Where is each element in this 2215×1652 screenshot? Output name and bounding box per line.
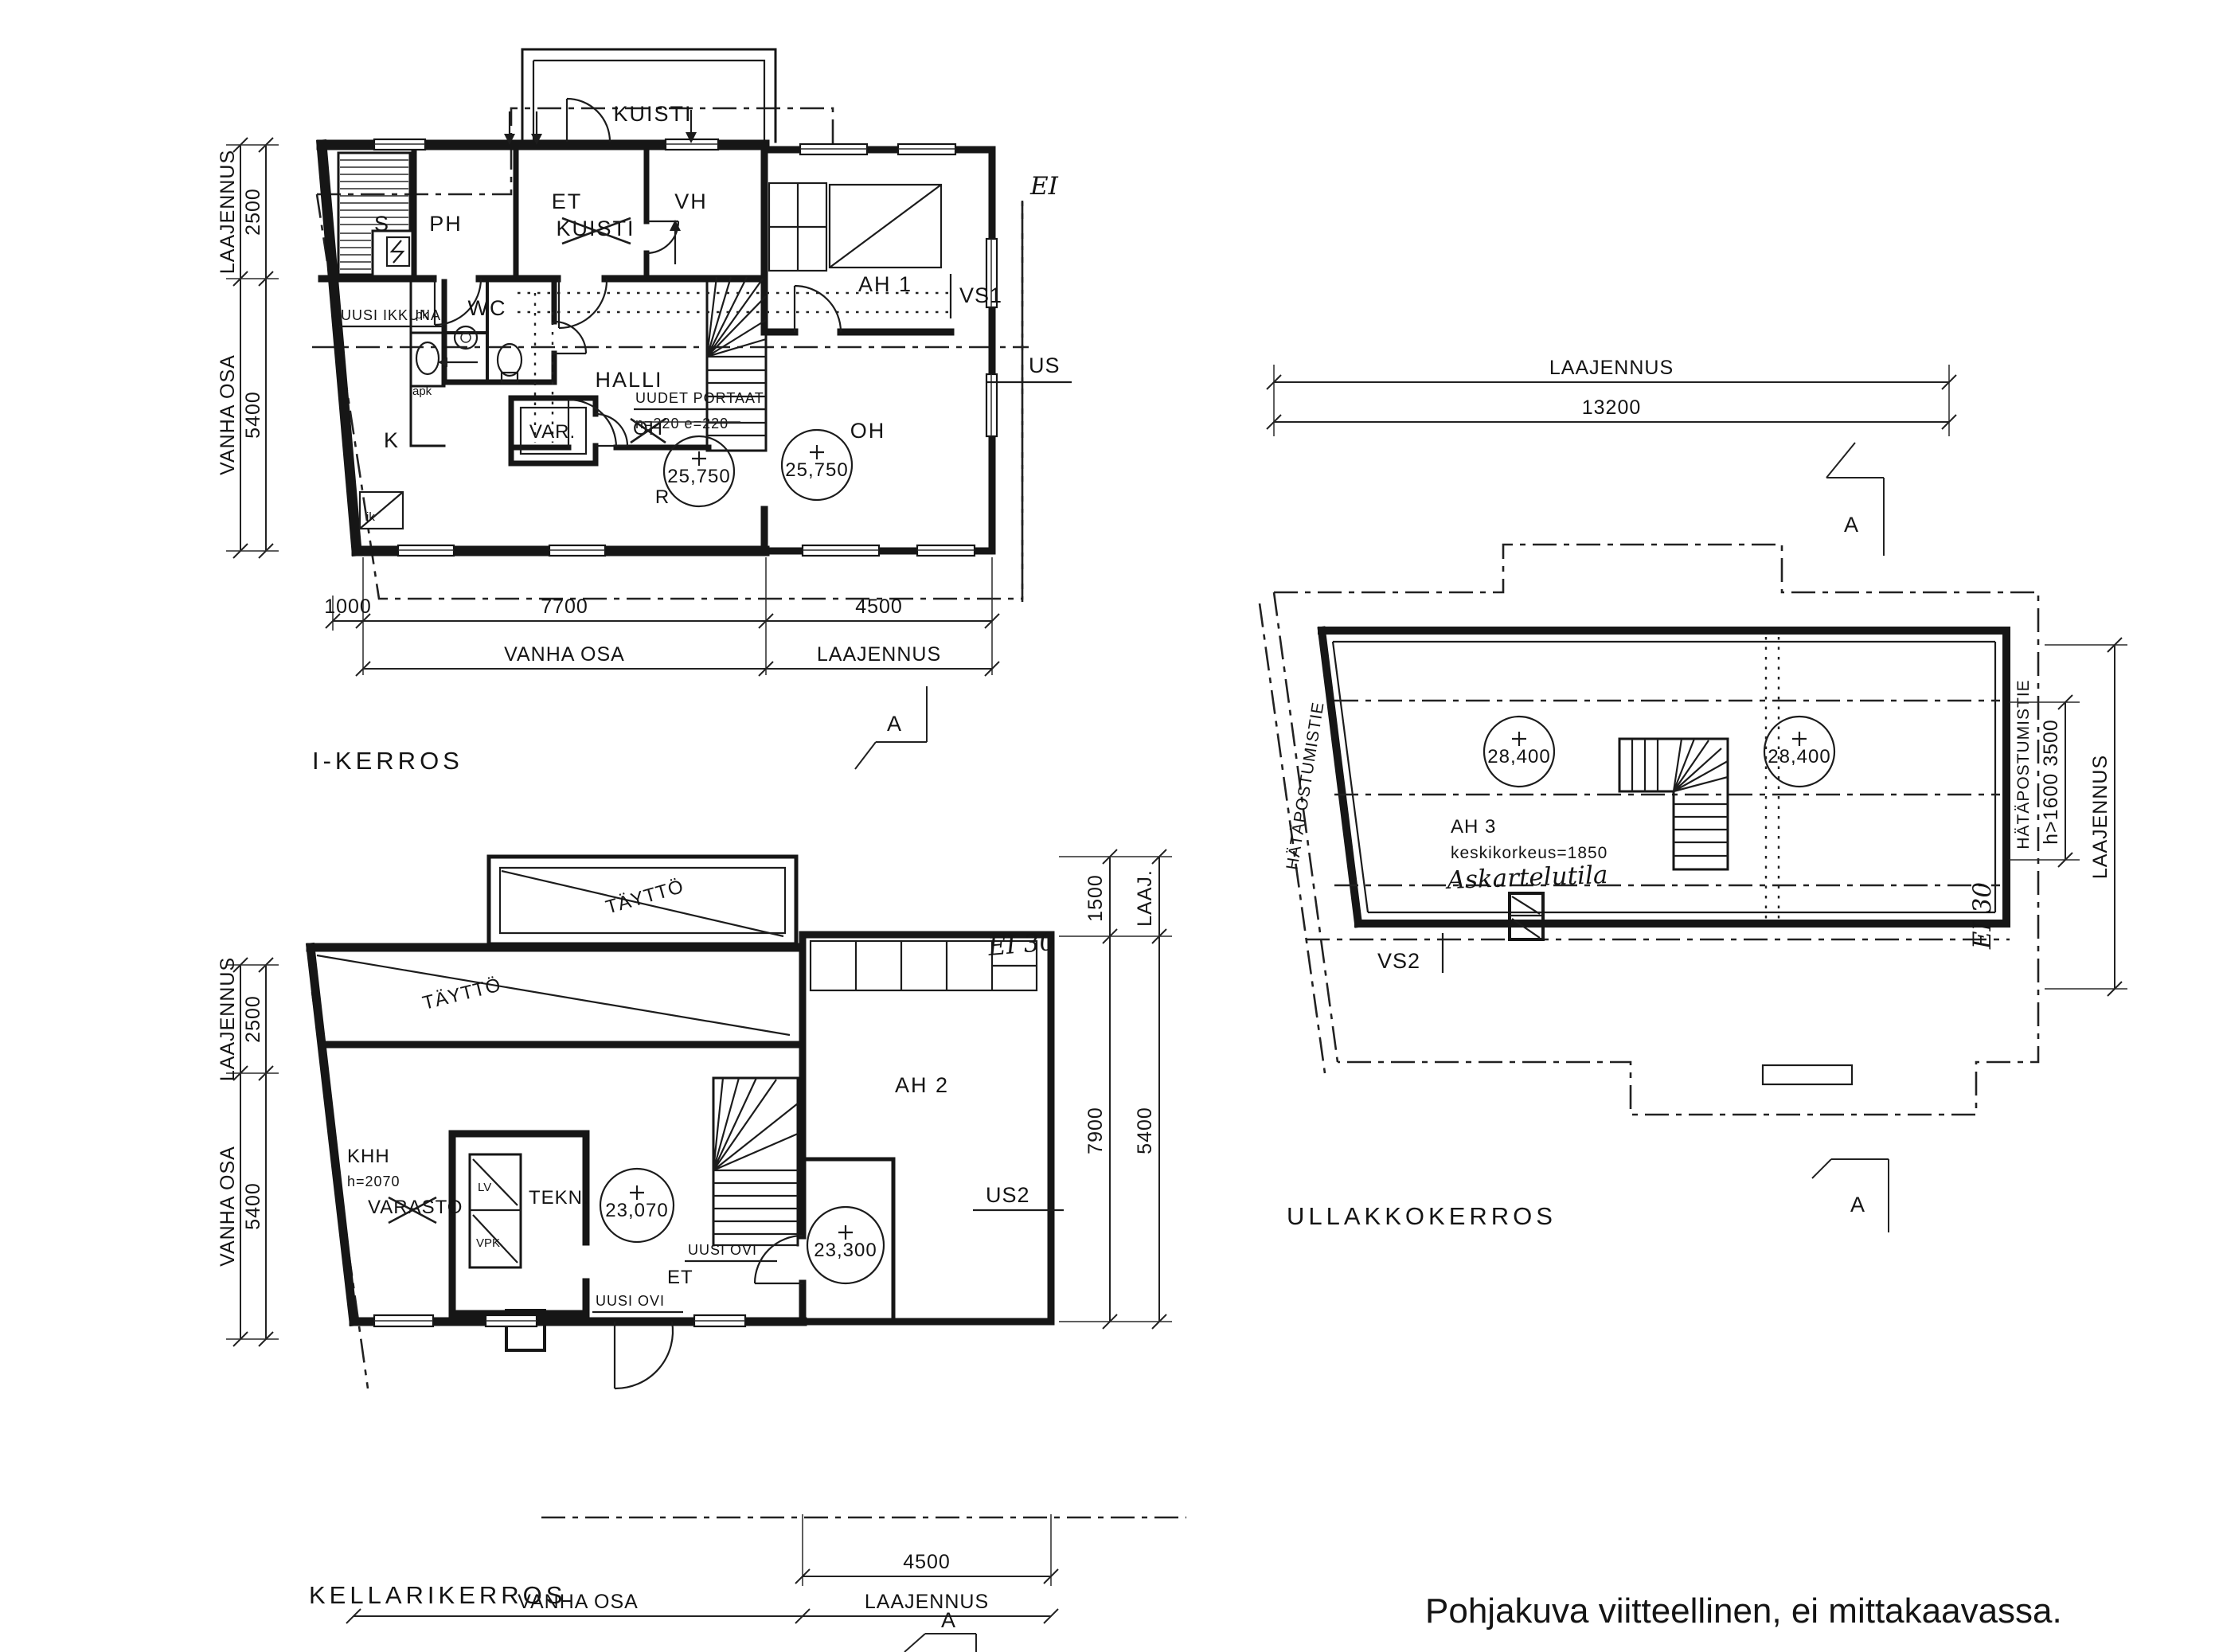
room-label-et: ET — [552, 189, 583, 213]
level-marker: 28,400 — [1484, 717, 1554, 787]
level-value: 25,750 — [785, 459, 848, 481]
label-lv: LV — [478, 1181, 491, 1194]
dim-label: LAAJENNUS — [817, 643, 941, 666]
level-value: 23,070 — [605, 1200, 668, 1221]
room-label-tekn: TEKN. — [529, 1187, 589, 1209]
room-label-k: K — [384, 428, 400, 452]
level-marker: 25,750 — [782, 430, 852, 500]
plan-title-ullakkokerros: ULLAKKOKERROS — [1287, 1202, 1557, 1230]
svg-text:LAAJ.: LAAJ. — [1134, 869, 1156, 927]
svg-text:A: A — [1850, 1193, 1866, 1217]
floor-plan-kellarikerros: TÄYTTÖ TÄYTTÖ LV VPK TEKN. — [217, 849, 1186, 1652]
architectural-drawing-sheet: 25,750 25,750 S PH ET KUISTI KUISTI VH A… — [0, 0, 2215, 1652]
room-label-ph: PH — [429, 212, 463, 236]
stairs-down — [713, 1078, 798, 1245]
dimension-top: LAAJENNUS 13200 — [1267, 357, 1956, 436]
stairs-attic — [1619, 739, 1728, 869]
porch-walls — [522, 49, 775, 142]
svg-text:A: A — [941, 1608, 957, 1632]
dim-label: LAAJENNUS — [217, 150, 239, 274]
label-hatapostumistie-right: HÄTÄPOSTUMISTIE — [2014, 679, 2033, 849]
room-label-et: ET — [667, 1267, 693, 1288]
room-label-kuisti: KUISTI — [613, 102, 692, 126]
label-apk: apk — [412, 385, 432, 398]
label-khh-height: h=2070 — [347, 1174, 400, 1189]
door-arc — [755, 1236, 803, 1283]
room-label-ah1: AH 1 — [858, 272, 912, 296]
svg-text:5400: 5400 — [242, 1182, 264, 1230]
svg-text:7900: 7900 — [1084, 1107, 1107, 1154]
dimension-left: LAAJENNUS 2500 VANHA OSA 5400 — [217, 957, 279, 1346]
svg-text:A: A — [1844, 513, 1860, 537]
label-jk: jk — [365, 510, 375, 524]
tekn-walls — [452, 1134, 586, 1314]
svg-text:5400: 5400 — [1134, 1107, 1156, 1154]
svg-text:h>1600 3500: h>1600 3500 — [2040, 719, 2062, 845]
svg-text:LAAJENNUS: LAAJENNUS — [865, 1591, 989, 1613]
toilet-icon — [498, 344, 522, 376]
note-stair-dims: n=220 e=220 — [635, 416, 729, 432]
level-marker: 28,400 — [1764, 717, 1834, 787]
note-uusi-ovi-1: UUSI OVI — [688, 1242, 757, 1258]
note-uusi-ovi-2: UUSI OVI — [596, 1293, 665, 1309]
svg-text:28,400: 28,400 — [1487, 746, 1550, 767]
dim-value: 5400 — [242, 391, 264, 439]
room-label-ah3: AH 3 — [1451, 816, 1496, 838]
label-hatapostumistie-left: HÄTÄPOSTUMISTIE — [1283, 701, 1328, 871]
room-label-vh: VH — [674, 189, 708, 213]
level-value: 25,750 — [667, 466, 730, 487]
dim-value: 7700 — [541, 596, 588, 618]
handwritten-ei30: EI 30 — [1968, 882, 1997, 950]
label-keskikorkeus: keskikorkeus=1850 — [1451, 844, 1608, 862]
dimension-right: 1500 LAAJ. 7900 5400 — [1059, 849, 1172, 1329]
laundry-sink — [416, 342, 439, 374]
wall-tag-vs1: VS1 — [959, 283, 1002, 307]
level-marker: 23,070 — [600, 1169, 674, 1242]
svg-text:4500: 4500 — [903, 1551, 951, 1573]
dim-value: 1000 — [324, 596, 372, 618]
footer-note: Pohjakuva viitteellinen, ei mittakaavass… — [1425, 1591, 2062, 1631]
room-label-ah2: AH 2 — [895, 1073, 949, 1097]
room-label-r: R — [655, 486, 670, 508]
section-marker-a: A — [904, 1608, 976, 1652]
handwritten-askartelutila: Askartelutila — [1444, 861, 1608, 895]
svg-text:28,400: 28,400 — [1768, 746, 1830, 767]
note-uudet-portaat: UUDET PORTAAT — [635, 390, 764, 406]
dim-label: VANHA OSA — [504, 643, 625, 666]
dim-label: VANHA OSA — [217, 354, 239, 475]
room-label-wc: WC — [468, 296, 507, 320]
dim-value: 2500 — [242, 188, 264, 236]
floor-plans-svg: 25,750 25,750 S PH ET KUISTI KUISTI VH A… — [0, 0, 2215, 1652]
dimension-left: LAAJENNUS 2500 VANHA OSA 5400 — [217, 138, 279, 558]
room-label-oh: OH — [850, 419, 886, 443]
svg-text:LAAJENNUS: LAAJENNUS — [2089, 755, 2111, 879]
section-marker-a: A — [855, 686, 927, 769]
plan-title-1-kerros: I-KERROS — [312, 747, 463, 775]
svg-text:LAAJENNUS: LAAJENNUS — [1549, 357, 1674, 379]
level-marker: 23,300 — [807, 1207, 884, 1283]
wall-tag-us: US — [1029, 353, 1061, 377]
sink-icon — [455, 326, 477, 349]
plan-title-kellarikerros: KELLARIKERROS — [309, 1581, 566, 1609]
handwritten-ei30: EI 30 — [986, 928, 1057, 962]
svg-text:VANHA OSA: VANHA OSA — [217, 1146, 239, 1267]
wall-tag-us2: US2 — [986, 1183, 1030, 1207]
room-label-var: VAR. — [529, 421, 576, 443]
svg-text:13200: 13200 — [1582, 396, 1642, 419]
label-taytto-1: TÄYTTÖ — [604, 876, 686, 919]
chimney — [1510, 893, 1543, 939]
svg-text:2500: 2500 — [242, 995, 264, 1043]
svg-text:LAAJENNUS: LAAJENNUS — [217, 957, 239, 1081]
label-vpk: VPK — [476, 1236, 500, 1250]
room-label-sauna: S — [374, 212, 390, 236]
attic-walls — [1322, 631, 2006, 924]
dimension-bottom: 1000 7700 4500 VANHA OSA LAAJENNUS — [324, 557, 999, 676]
wall-tag-vs2: VS2 — [1377, 949, 1420, 973]
note-uusi-ikkuna: UUSI IKKUNA — [341, 307, 441, 323]
ah2-outer-wall — [803, 935, 1051, 1322]
level-value: 23,300 — [814, 1240, 877, 1261]
handwritten-note: EI — [1029, 172, 1059, 201]
floor-plan-ullakkokerros: LAAJENNUS 13200 A 28,400 — [1260, 357, 2127, 1232]
room-label-varasto: VARASTO — [368, 1197, 463, 1218]
section-marker-a-bottom: A — [1812, 1159, 1889, 1232]
section-marker-a-top: A — [1826, 443, 1884, 556]
floor-plan-1-kerros: 25,750 25,750 S PH ET KUISTI KUISTI VH A… — [217, 49, 1072, 775]
svg-text:1500: 1500 — [1084, 874, 1107, 922]
section-letter: A — [887, 712, 903, 736]
dim-value: 4500 — [855, 596, 903, 618]
door-arc-exterior — [615, 1322, 673, 1388]
room-label-khh: KHH — [347, 1146, 390, 1167]
room-label-halli: HALLI — [595, 368, 662, 392]
